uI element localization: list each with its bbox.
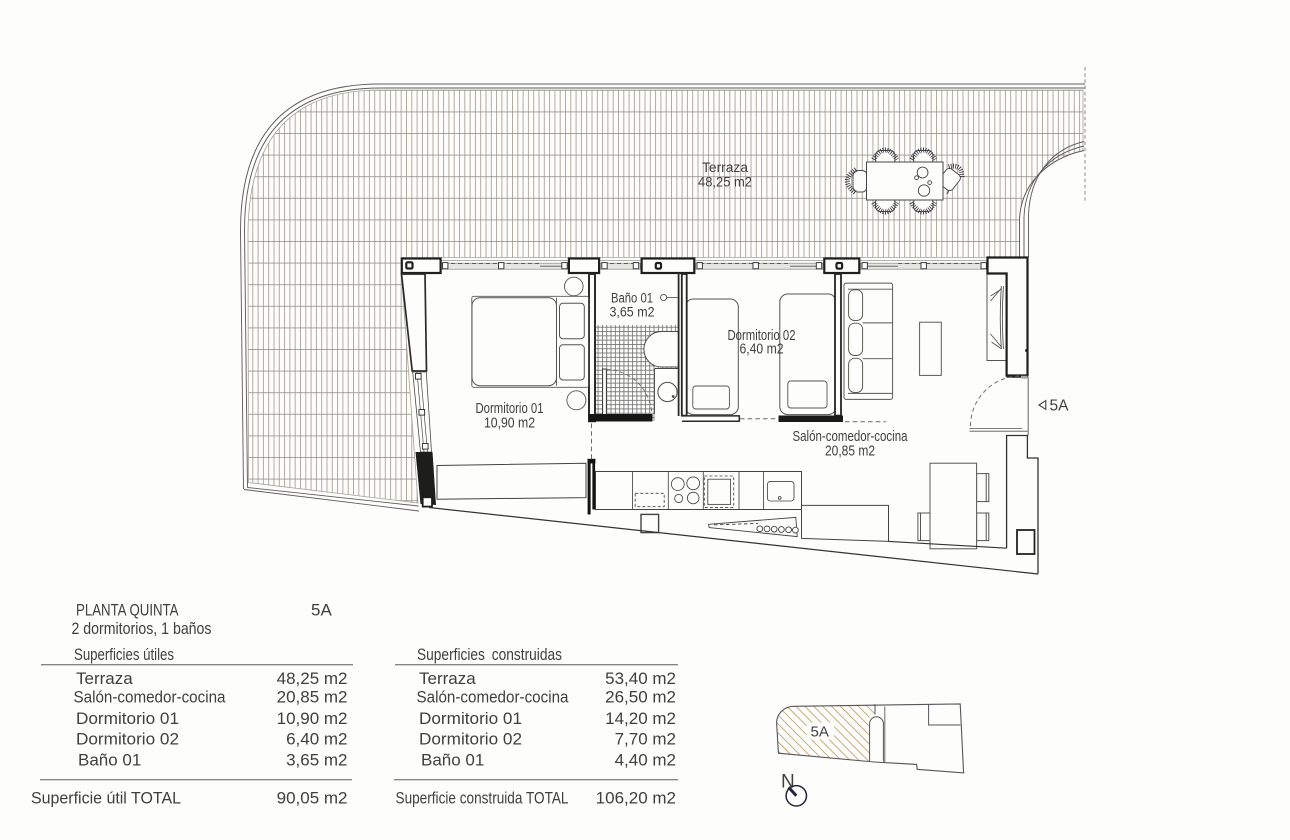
svg-text:Dormitorio 02: Dormitorio 02 (419, 730, 522, 749)
svg-text:PLANTA QUINTA: PLANTA QUINTA (76, 601, 179, 620)
svg-text:Dormitorio 02: Dormitorio 02 (76, 730, 179, 749)
svg-text:Terraza: Terraza (419, 669, 476, 688)
svg-text:6,40 m2: 6,40 m2 (740, 342, 784, 358)
svg-text:26,50 m2: 26,50 m2 (605, 688, 676, 707)
svg-text:Baño 01: Baño 01 (421, 750, 484, 769)
svg-text:Superficie construida TOTAL: Superficie construida TOTAL (396, 789, 569, 808)
svg-text:Dormitorio 01: Dormitorio 01 (419, 709, 522, 728)
svg-text:10,90 m2: 10,90 m2 (277, 709, 348, 728)
svg-text:48,25 m2: 48,25 m2 (698, 175, 752, 190)
svg-text:Baño 01: Baño 01 (78, 750, 141, 769)
svg-text:106,20 m2: 106,20 m2 (596, 789, 676, 808)
svg-text:20,85 m2: 20,85 m2 (825, 444, 875, 460)
svg-text:14,20 m2: 14,20 m2 (605, 709, 676, 728)
svg-text:Superficies útiles: Superficies útiles (74, 645, 174, 664)
svg-text:Superficies construidas: Superficies construidas (417, 645, 562, 664)
svg-text:7,70 m2: 7,70 m2 (615, 730, 676, 749)
svg-text:53,40 m2: 53,40 m2 (605, 669, 676, 688)
svg-text:Salón-comedor-cocina: Salón-comedor-cocina (74, 688, 226, 707)
svg-text:2 dormitorios, 1 baños: 2 dormitorios, 1 baños (72, 619, 212, 638)
svg-text:90,05 m2: 90,05 m2 (277, 789, 348, 808)
svg-text:Superficie útil TOTAL: Superficie útil TOTAL (31, 789, 181, 808)
svg-text:5A: 5A (311, 601, 332, 620)
svg-text:6,40 m2: 6,40 m2 (286, 730, 347, 749)
svg-text:3,65 m2: 3,65 m2 (610, 305, 655, 320)
svg-text:4,40 m2: 4,40 m2 (615, 750, 676, 769)
svg-text:20,85 m2: 20,85 m2 (277, 688, 348, 707)
svg-text:Salón-comedor-cocina: Salón-comedor-cocina (417, 688, 569, 707)
svg-text:48,25 m2: 48,25 m2 (277, 669, 348, 688)
svg-text:5A: 5A (1050, 398, 1070, 415)
svg-text:Terraza: Terraza (702, 160, 749, 175)
svg-text:5A: 5A (811, 724, 829, 741)
svg-text:Dormitorio 01: Dormitorio 01 (76, 709, 179, 728)
svg-text:Baño 01: Baño 01 (611, 291, 653, 306)
svg-text:Terraza: Terraza (76, 669, 133, 688)
svg-text:3,65 m2: 3,65 m2 (286, 750, 347, 769)
svg-text:10,90 m2: 10,90 m2 (484, 416, 535, 432)
